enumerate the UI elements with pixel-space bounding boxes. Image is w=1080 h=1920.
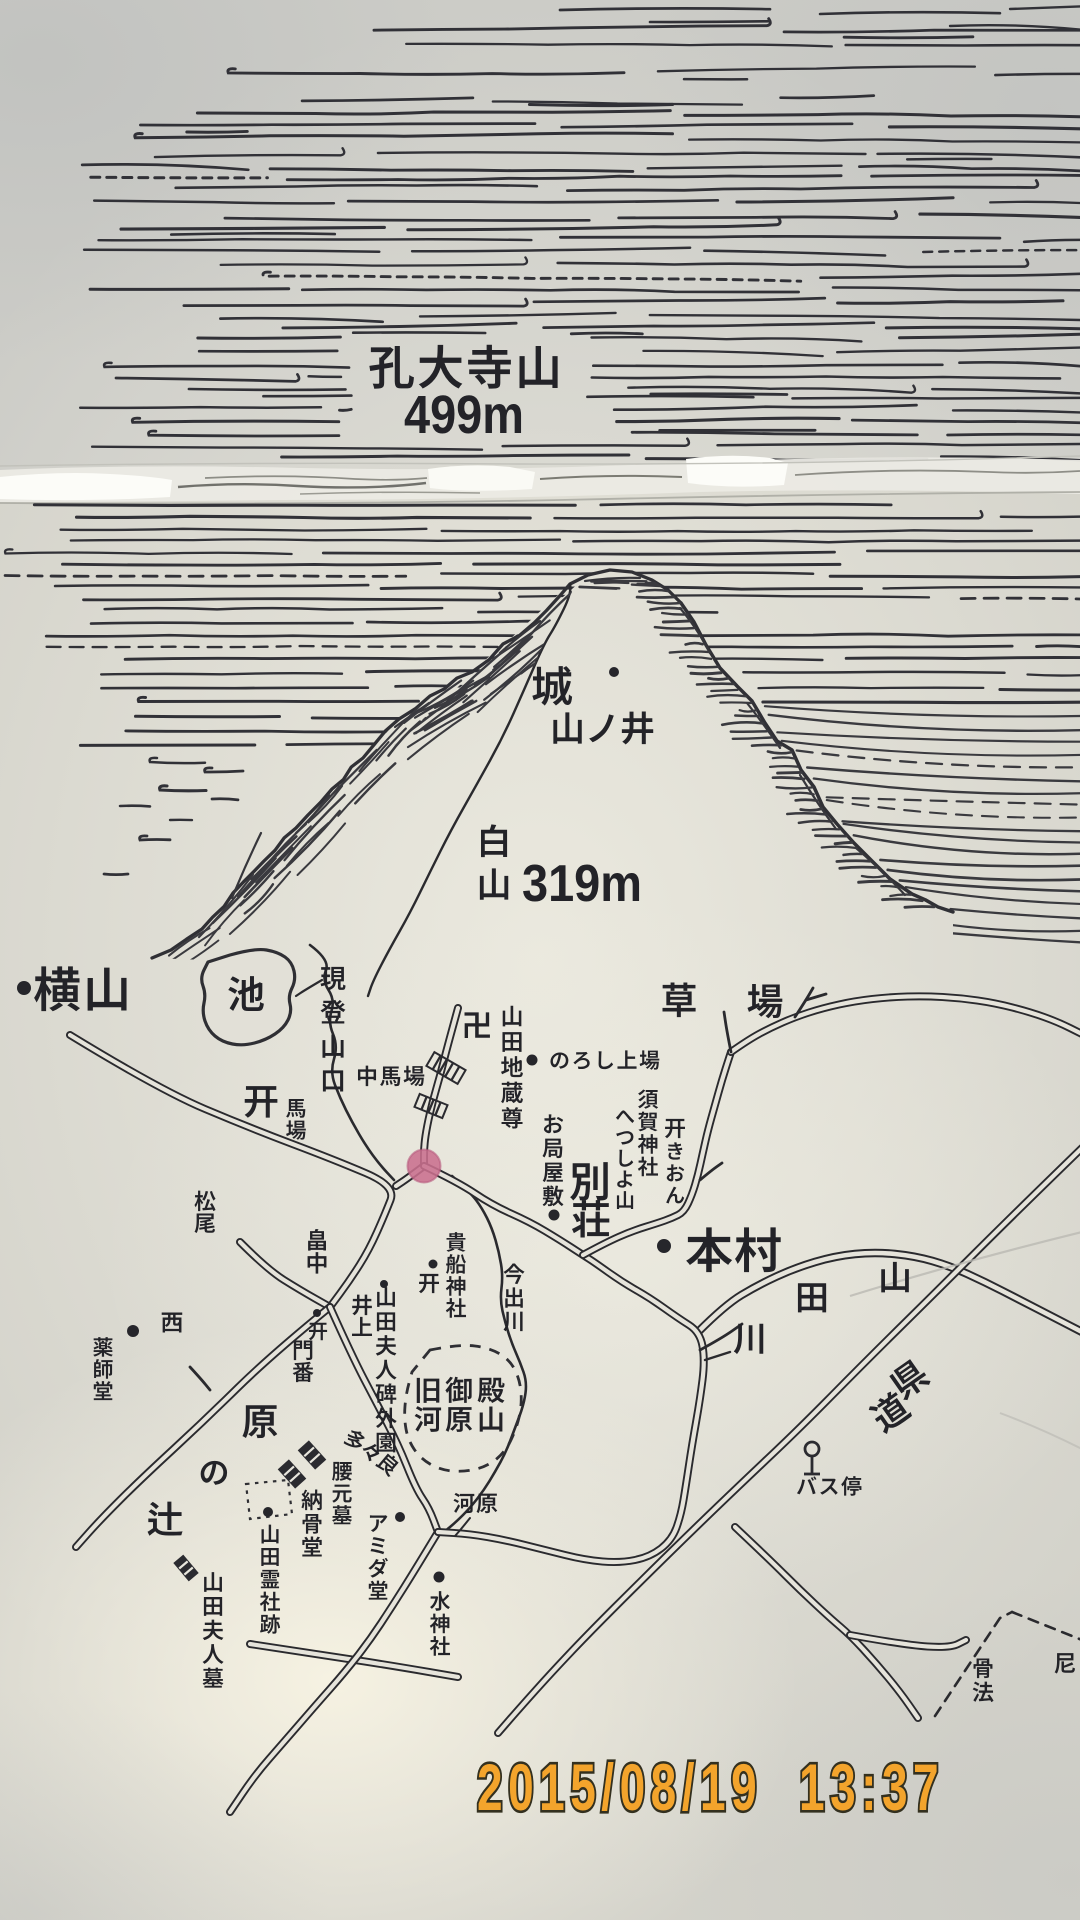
svg-text:13:37: 13:37 xyxy=(799,1752,944,1825)
svg-text:319m: 319m xyxy=(522,855,642,913)
svg-text:2015/08/19: 2015/08/19 xyxy=(477,1752,762,1825)
svg-text:499m: 499m xyxy=(404,385,524,445)
